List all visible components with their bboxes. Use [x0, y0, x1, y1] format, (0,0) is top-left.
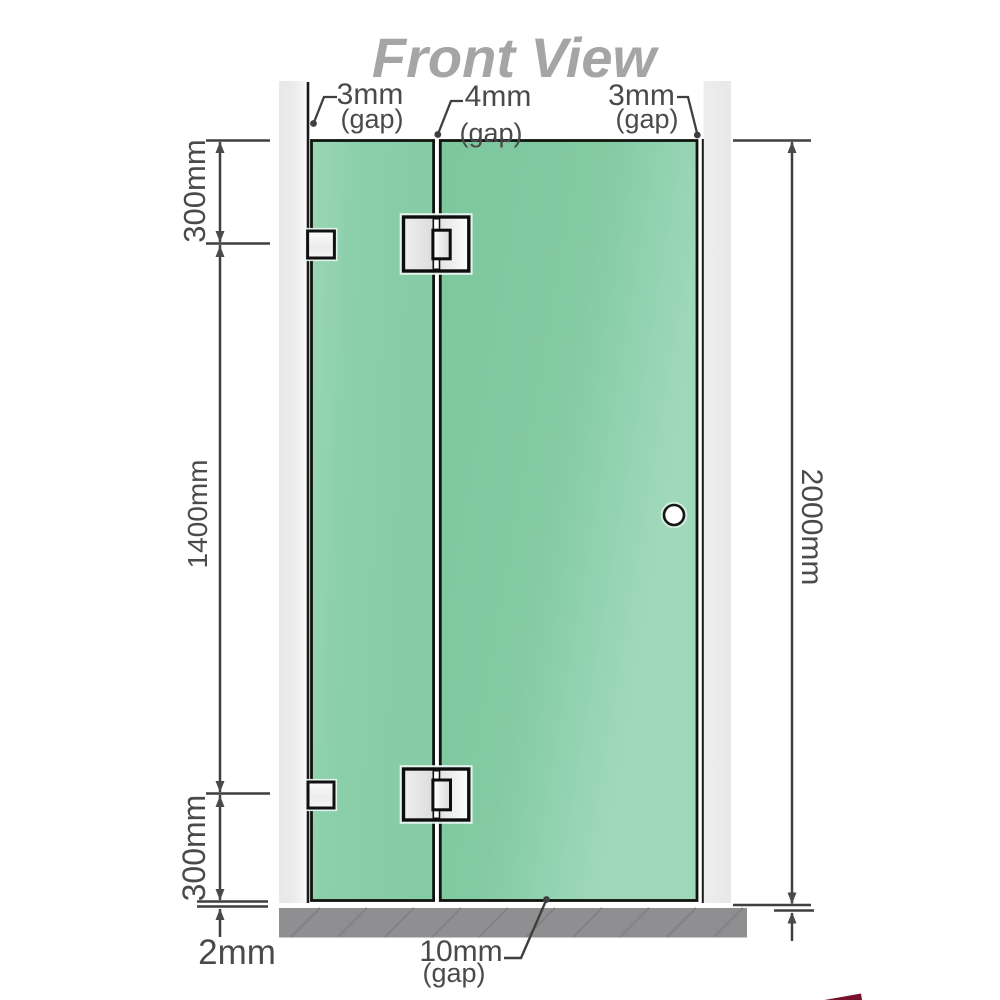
svg-text:(gap): (gap) — [459, 118, 522, 148]
svg-text:2mm: 2mm — [198, 933, 276, 972]
svg-text:4mm: 4mm — [465, 80, 532, 113]
svg-text:(gap): (gap) — [422, 958, 485, 988]
svg-text:1400mm: 1400mm — [182, 460, 213, 569]
svg-text:300mm: 300mm — [177, 139, 212, 242]
svg-text:(gap): (gap) — [340, 104, 403, 134]
svg-text:(gap): (gap) — [615, 104, 678, 134]
svg-text:2000mm: 2000mm — [795, 469, 828, 586]
svg-text:300mm: 300mm — [176, 795, 212, 902]
